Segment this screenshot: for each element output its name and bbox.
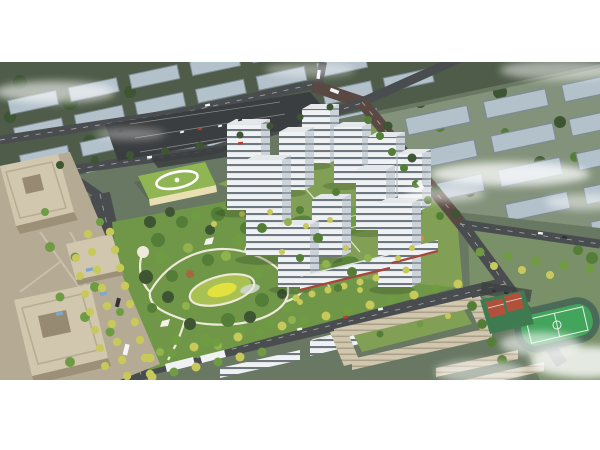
screenshot-canvas <box>0 0 600 450</box>
aerial-render <box>0 62 600 380</box>
kindergarten-roof-dot <box>175 178 180 183</box>
